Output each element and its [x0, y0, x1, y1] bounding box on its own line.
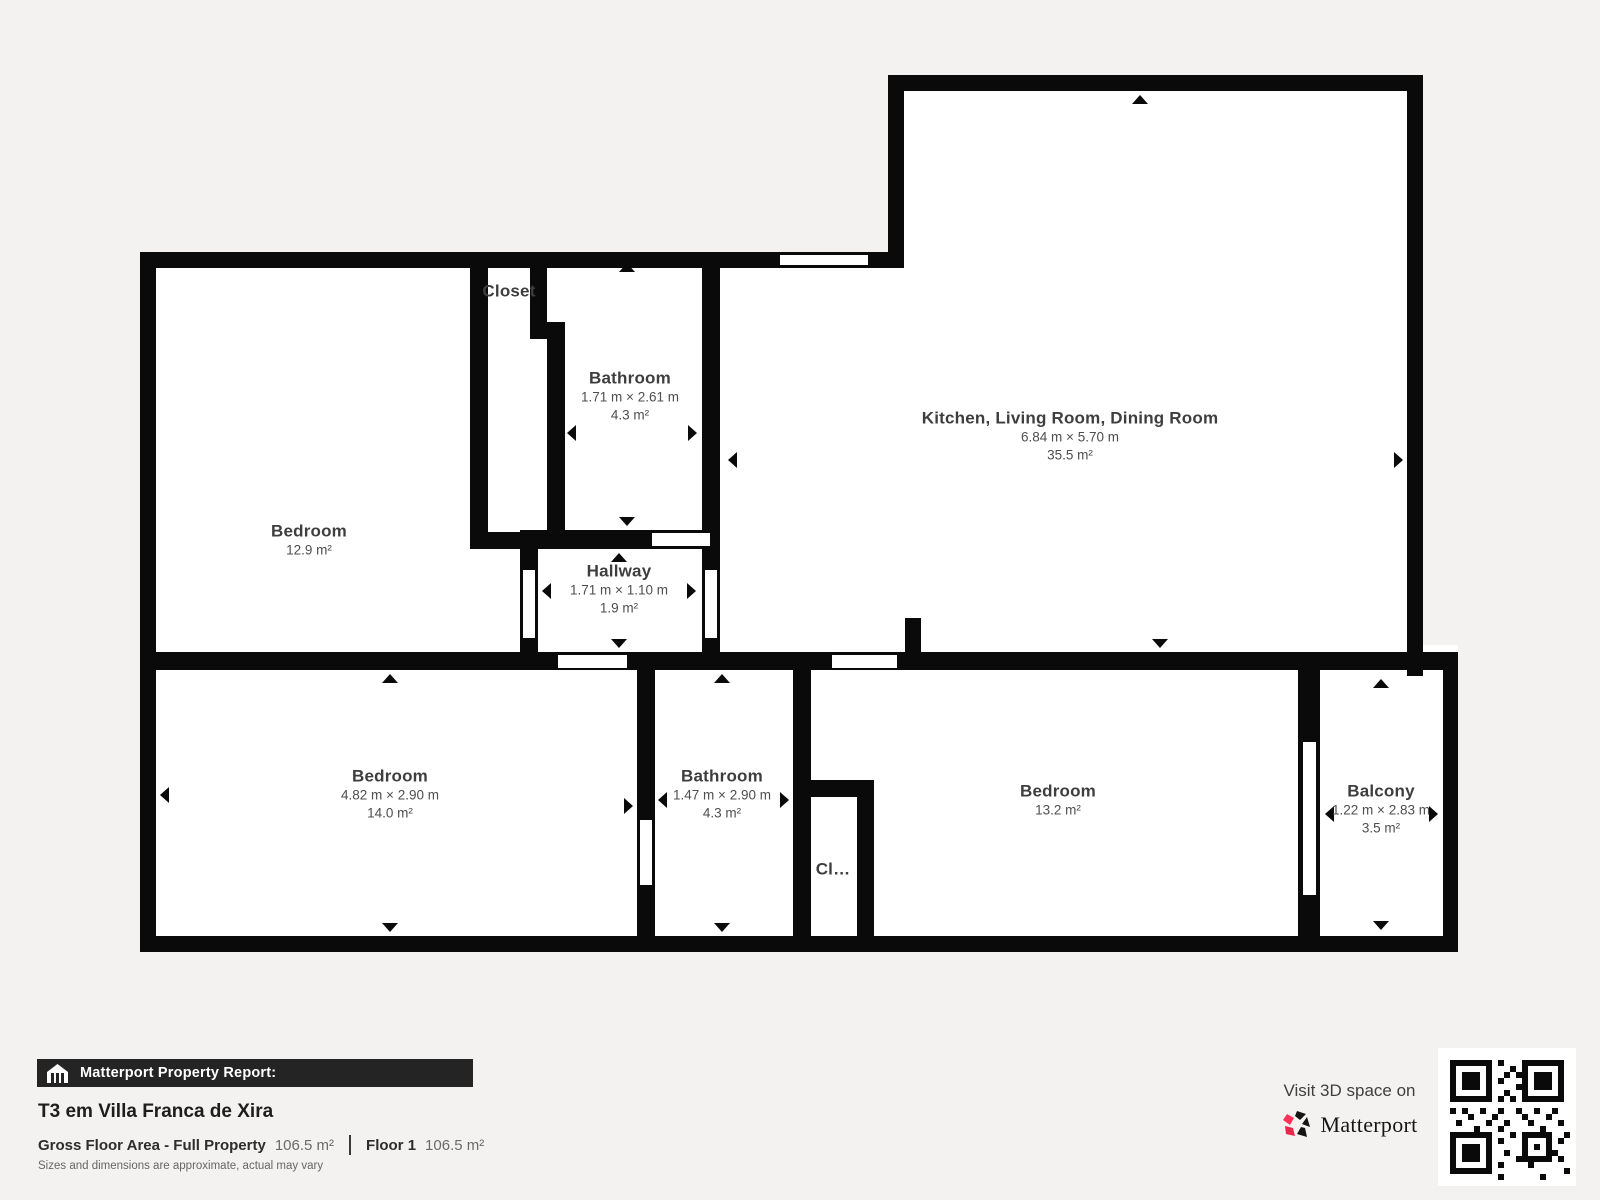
matterport-brand: Matterport: [1252, 1110, 1447, 1140]
room-label-bedroom-left: Bedroom 12.9 m²: [271, 521, 347, 560]
room-name: Balcony: [1332, 781, 1430, 802]
room-dims: 6.84 m × 5.70 m: [922, 429, 1219, 447]
room-dims: 1.22 m × 2.83 m: [1332, 802, 1430, 820]
room-name: Bathroom: [673, 766, 771, 787]
room-label-closet: Closet: [482, 281, 535, 302]
matterport-pinwheel-icon: [1281, 1110, 1311, 1140]
property-title: T3 em Villa Franca de Xira: [38, 1101, 273, 1123]
gross-floor-area-label: Gross Floor Area - Full Property: [38, 1137, 266, 1154]
area-metrics: Gross Floor Area - Full Property 106.5 m…: [38, 1135, 484, 1155]
floor-label: Floor 1: [366, 1137, 416, 1154]
gross-floor-area-value: 106.5 m²: [275, 1137, 334, 1154]
room-label-hallway: Hallway 1.71 m × 1.10 m 1.9 m²: [570, 561, 668, 618]
qr-code-svg: [1438, 1048, 1576, 1186]
house-icon: [47, 1064, 68, 1083]
room-area: 14.0 m²: [341, 805, 439, 823]
room-name: Cl…: [816, 859, 851, 880]
room-area: 4.3 m²: [673, 805, 771, 823]
room-dims: 1.71 m × 1.10 m: [570, 582, 668, 600]
qr-code: [1438, 1048, 1576, 1186]
room-label-balcony: Balcony 1.22 m × 2.83 m 3.5 m²: [1332, 781, 1430, 838]
room-label-closet-small: Cl…: [816, 859, 851, 880]
room-area: 35.5 m²: [922, 447, 1219, 465]
report-banner: Matterport Property Report:: [37, 1059, 473, 1087]
room-dims: 1.47 m × 2.90 m: [673, 787, 771, 805]
room-label-kitchen-living-dining: Kitchen, Living Room, Dining Room 6.84 m…: [922, 408, 1219, 465]
room-name: Bedroom: [341, 766, 439, 787]
room-dims: 1.71 m × 2.61 m: [581, 389, 679, 407]
matterport-floorplan-report: Closet Bathroom 1.71 m × 2.61 m 4.3 m² K…: [0, 0, 1600, 1200]
room-area: 12.9 m²: [271, 542, 347, 560]
disclaimer-text: Sizes and dimensions are approximate, ac…: [38, 1160, 323, 1172]
visit-3d-text: Visit 3D space on: [1252, 1081, 1447, 1101]
matterport-wordmark: Matterport: [1320, 1112, 1417, 1138]
metrics-divider: [349, 1135, 351, 1155]
room-dims: 4.82 m × 2.90 m: [341, 787, 439, 805]
room-label-bedroom-bottom-right: Bedroom 13.2 m²: [1020, 781, 1096, 820]
report-banner-label: Matterport Property Report:: [80, 1065, 276, 1081]
room-label-bathroom-top: Bathroom 1.71 m × 2.61 m 4.3 m²: [581, 368, 679, 425]
room-name: Bathroom: [581, 368, 679, 389]
room-name: Closet: [482, 281, 535, 302]
room-name: Hallway: [570, 561, 668, 582]
room-area: 13.2 m²: [1020, 802, 1096, 820]
room-label-bathroom-bottom: Bathroom 1.47 m × 2.90 m 4.3 m²: [673, 766, 771, 823]
room-area: 1.9 m²: [570, 600, 668, 618]
room-name: Bedroom: [1020, 781, 1096, 802]
room-label-bedroom-bottom-left: Bedroom 4.82 m × 2.90 m 14.0 m²: [341, 766, 439, 823]
room-name: Kitchen, Living Room, Dining Room: [922, 408, 1219, 429]
room-area: 4.3 m²: [581, 407, 679, 425]
room-area: 3.5 m²: [1332, 820, 1430, 838]
floor-value: 106.5 m²: [425, 1137, 484, 1154]
room-name: Bedroom: [271, 521, 347, 542]
floorplan-svg: [0, 0, 1600, 1200]
